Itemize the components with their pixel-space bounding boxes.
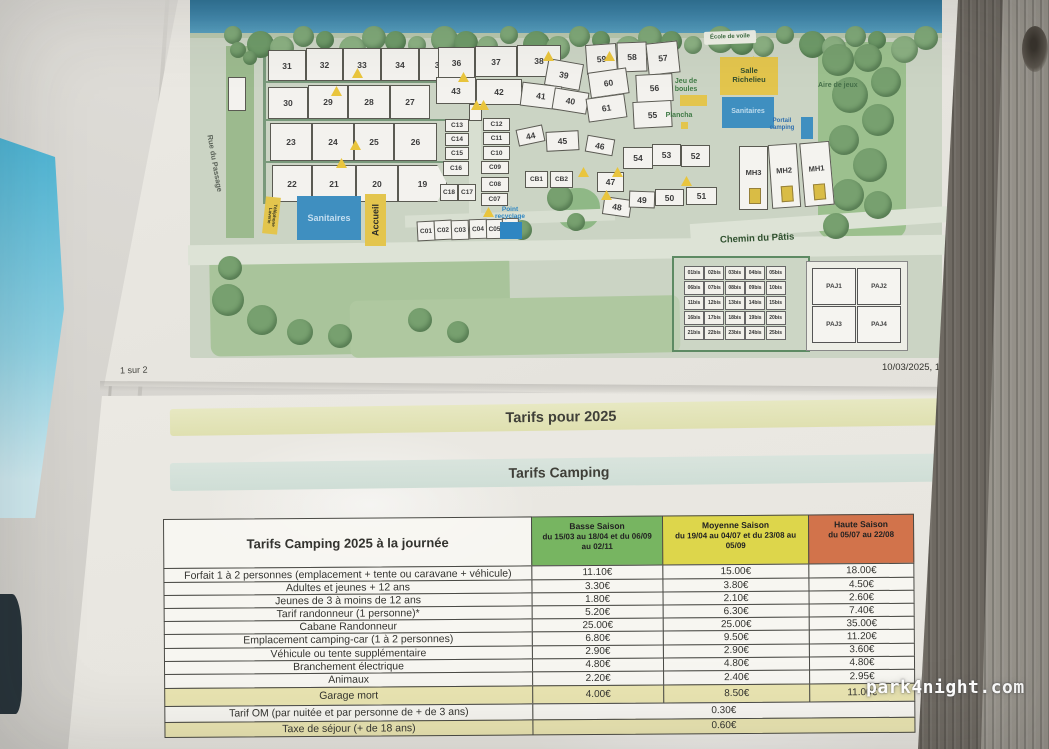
map-plot-16bis: 16bis xyxy=(684,311,704,325)
tree xyxy=(212,284,244,316)
map-plot-17bis: 17bis xyxy=(704,311,724,325)
map-plot-C12: C12 xyxy=(483,118,510,131)
hedge xyxy=(266,161,466,163)
map-plot-51: 51 xyxy=(686,187,717,205)
map-plot-20bis: 20bis xyxy=(766,311,786,325)
map-plot-57: 57 xyxy=(645,40,680,75)
row-merged-value-cell: 0.60€ xyxy=(532,716,915,735)
map-plot-C14: C14 xyxy=(445,133,469,146)
map-plot-C13: C13 xyxy=(445,119,469,132)
season-header-1: Basse Saisondu 15/03 au 18/04 et du 06/0… xyxy=(531,516,663,567)
map-plot-C08: C08 xyxy=(481,177,509,192)
season-header-2: Moyenne Saisondu 19/04 au 04/07 et du 23… xyxy=(662,514,809,565)
map-plot-PAJ1: PAJ1 xyxy=(812,268,856,305)
map-plot-C16: C16 xyxy=(443,161,469,176)
playground-label: Aire de jeux xyxy=(818,82,872,90)
park4night-watermark: park4night.com xyxy=(866,677,1025,698)
map-plot-PAJ2: PAJ2 xyxy=(857,268,901,305)
map-plot-MH2: MH2 xyxy=(768,143,801,209)
hedge xyxy=(266,81,462,83)
sailing-school-label: École de voile xyxy=(704,30,756,45)
map-plot-C02: C02 xyxy=(433,220,452,241)
tree xyxy=(247,305,277,335)
wood-knot xyxy=(1022,26,1048,72)
tree xyxy=(408,308,432,332)
map-plot-22bis: 22bis xyxy=(704,326,724,340)
season-header-3: Haute Saisondu 05/07 au 22/08 xyxy=(808,514,914,565)
tree xyxy=(243,51,257,65)
map-plot xyxy=(228,77,246,111)
mh-label: MH1 xyxy=(802,163,831,174)
map-plot-C03: C03 xyxy=(451,220,470,241)
tariff-table: Tarifs Camping 2025 à la journéeBasse Sa… xyxy=(164,515,925,738)
map-plot-25bis: 25bis xyxy=(766,326,786,340)
map-plot-14bis: 14bis xyxy=(745,296,765,310)
map-plot-C09: C09 xyxy=(481,161,509,174)
map-plot-43: 43 xyxy=(436,77,476,104)
map-plot-24: 24 xyxy=(312,123,354,161)
tree xyxy=(567,213,585,231)
tree xyxy=(447,321,469,343)
map-plot-24bis: 24bis xyxy=(745,326,765,340)
camping-gate xyxy=(801,117,813,139)
tree xyxy=(287,319,313,345)
photo-camping-sign: 3132333435302928272324252622212019363738… xyxy=(0,0,1049,749)
map-plot-26: 26 xyxy=(394,123,437,161)
plancha-spot xyxy=(681,122,688,129)
map-plot-C18: C18 xyxy=(440,184,458,201)
salle-richelieu-building: Salle Richelieu xyxy=(720,57,778,95)
tree xyxy=(822,44,854,76)
map-plot-09bis: 09bis xyxy=(745,281,765,295)
map-plot-36: 36 xyxy=(438,47,475,78)
tree xyxy=(218,256,242,280)
map-plot-13bis: 13bis xyxy=(725,296,745,310)
map-plot-06bis: 06bis xyxy=(684,281,704,295)
row-label-cell: Taxe de séjour (+ de 18 ans) xyxy=(164,719,533,738)
map-plot-32: 32 xyxy=(306,48,343,81)
map-plot-18bis: 18bis xyxy=(725,311,745,325)
map-plot-03bis: 03bis xyxy=(725,266,745,280)
path xyxy=(469,120,481,220)
map-plot-19bis: 19bis xyxy=(745,311,765,325)
map-plot-02bis: 02bis xyxy=(704,266,724,280)
green-strip xyxy=(226,46,254,238)
map-plot-PAJ4: PAJ4 xyxy=(857,306,901,343)
recycling-point-label: Point recyclage xyxy=(492,206,528,221)
map-plot-25: 25 xyxy=(354,123,394,161)
sanitary-block-main: Sanitaires xyxy=(297,196,361,240)
tree xyxy=(862,104,894,136)
mh-label: MH2 xyxy=(770,165,798,176)
map-plot-08bis: 08bis xyxy=(725,281,745,295)
map-plot-28: 28 xyxy=(348,85,390,119)
map-plot-CB2: CB2 xyxy=(550,171,573,188)
tree xyxy=(569,26,590,47)
header-label-cell: Tarifs Camping 2025 à la journée xyxy=(163,516,532,569)
map-plot-30: 30 xyxy=(268,87,308,119)
tree xyxy=(853,148,887,182)
tree xyxy=(316,31,334,49)
map-plot-33: 33 xyxy=(343,48,381,81)
map-plot-11bis: 11bis xyxy=(684,296,704,310)
tree xyxy=(362,26,386,50)
lawn-area xyxy=(350,295,681,358)
map-plot-C04: C04 xyxy=(469,219,488,240)
map-plot-C07: C07 xyxy=(481,193,508,206)
table-header-row: Tarifs Camping 2025 à la journéeBasse Sa… xyxy=(164,514,924,569)
map-plot-C17: C17 xyxy=(458,184,476,201)
map-plot-23bis: 23bis xyxy=(725,326,745,340)
map-plot-MH1: MH1 xyxy=(799,141,834,207)
map-plot-54: 54 xyxy=(623,147,653,169)
tree xyxy=(914,26,938,50)
tree xyxy=(293,26,314,47)
tree xyxy=(864,191,892,219)
tree xyxy=(500,26,518,44)
map-plot-53: 53 xyxy=(652,144,681,166)
caravan-icon xyxy=(749,188,761,204)
map-plot-PAJ3: PAJ3 xyxy=(812,306,856,343)
tree xyxy=(776,26,794,44)
map-plot-MH3: MH3 xyxy=(739,146,768,210)
map-plot-C11: C11 xyxy=(483,132,510,145)
camping-gate-label: Portail camping xyxy=(764,118,800,132)
map-plot-CB1: CB1 xyxy=(525,171,548,188)
map-plot-15bis: 15bis xyxy=(766,296,786,310)
map-plot-50: 50 xyxy=(655,189,684,206)
page-number: 1 sur 2 xyxy=(120,365,148,376)
map-plot-45: 45 xyxy=(545,130,579,152)
row-value-cell: 8.50€ xyxy=(663,683,810,703)
boules-court xyxy=(680,95,707,106)
map-plot-C15: C15 xyxy=(445,147,469,160)
tree xyxy=(684,36,702,54)
mh-label: MH3 xyxy=(740,168,767,177)
tree xyxy=(854,44,882,72)
map-plot-10bis: 10bis xyxy=(766,281,786,295)
tree xyxy=(871,67,901,97)
map-plot-05bis: 05bis xyxy=(766,266,786,280)
row-value-cell: 4.00€ xyxy=(532,684,664,704)
tree xyxy=(829,125,859,155)
map-plot-04bis: 04bis xyxy=(745,266,765,280)
caravan-icon xyxy=(780,185,793,202)
map-plot-01bis: 01bis xyxy=(684,266,704,280)
map-plot-21bis: 21bis xyxy=(684,326,704,340)
map-plot-34: 34 xyxy=(381,48,419,81)
tree xyxy=(547,185,573,211)
map-plot-07bis: 07bis xyxy=(704,281,724,295)
left-poster-tree-silhouette xyxy=(0,594,22,714)
map-plot-29: 29 xyxy=(308,85,348,119)
recycling-point xyxy=(500,222,522,239)
map-plot-12bis: 12bis xyxy=(704,296,724,310)
map-plot-49: 49 xyxy=(629,191,656,209)
tree xyxy=(832,179,864,211)
print-timestamp: 10/03/2025, 14:10 xyxy=(882,362,959,373)
map-plot-52: 52 xyxy=(681,145,710,167)
caravan-icon xyxy=(813,183,826,200)
plancha-label: Plancha xyxy=(655,112,703,120)
tree xyxy=(753,36,774,57)
map-plot-23: 23 xyxy=(270,123,312,161)
hedge xyxy=(263,46,266,204)
hedge xyxy=(266,119,464,121)
map-plot-C10: C10 xyxy=(483,146,510,160)
boules-area-label: Jeu de boules xyxy=(664,78,708,94)
left-poster-sky-photo xyxy=(0,138,64,518)
map-plot-37: 37 xyxy=(475,46,517,77)
tree xyxy=(823,213,849,239)
tree xyxy=(328,324,352,348)
map-plot-27: 27 xyxy=(390,85,430,119)
reception-building: Accueil xyxy=(365,194,386,246)
map-plot-31: 31 xyxy=(268,50,306,81)
